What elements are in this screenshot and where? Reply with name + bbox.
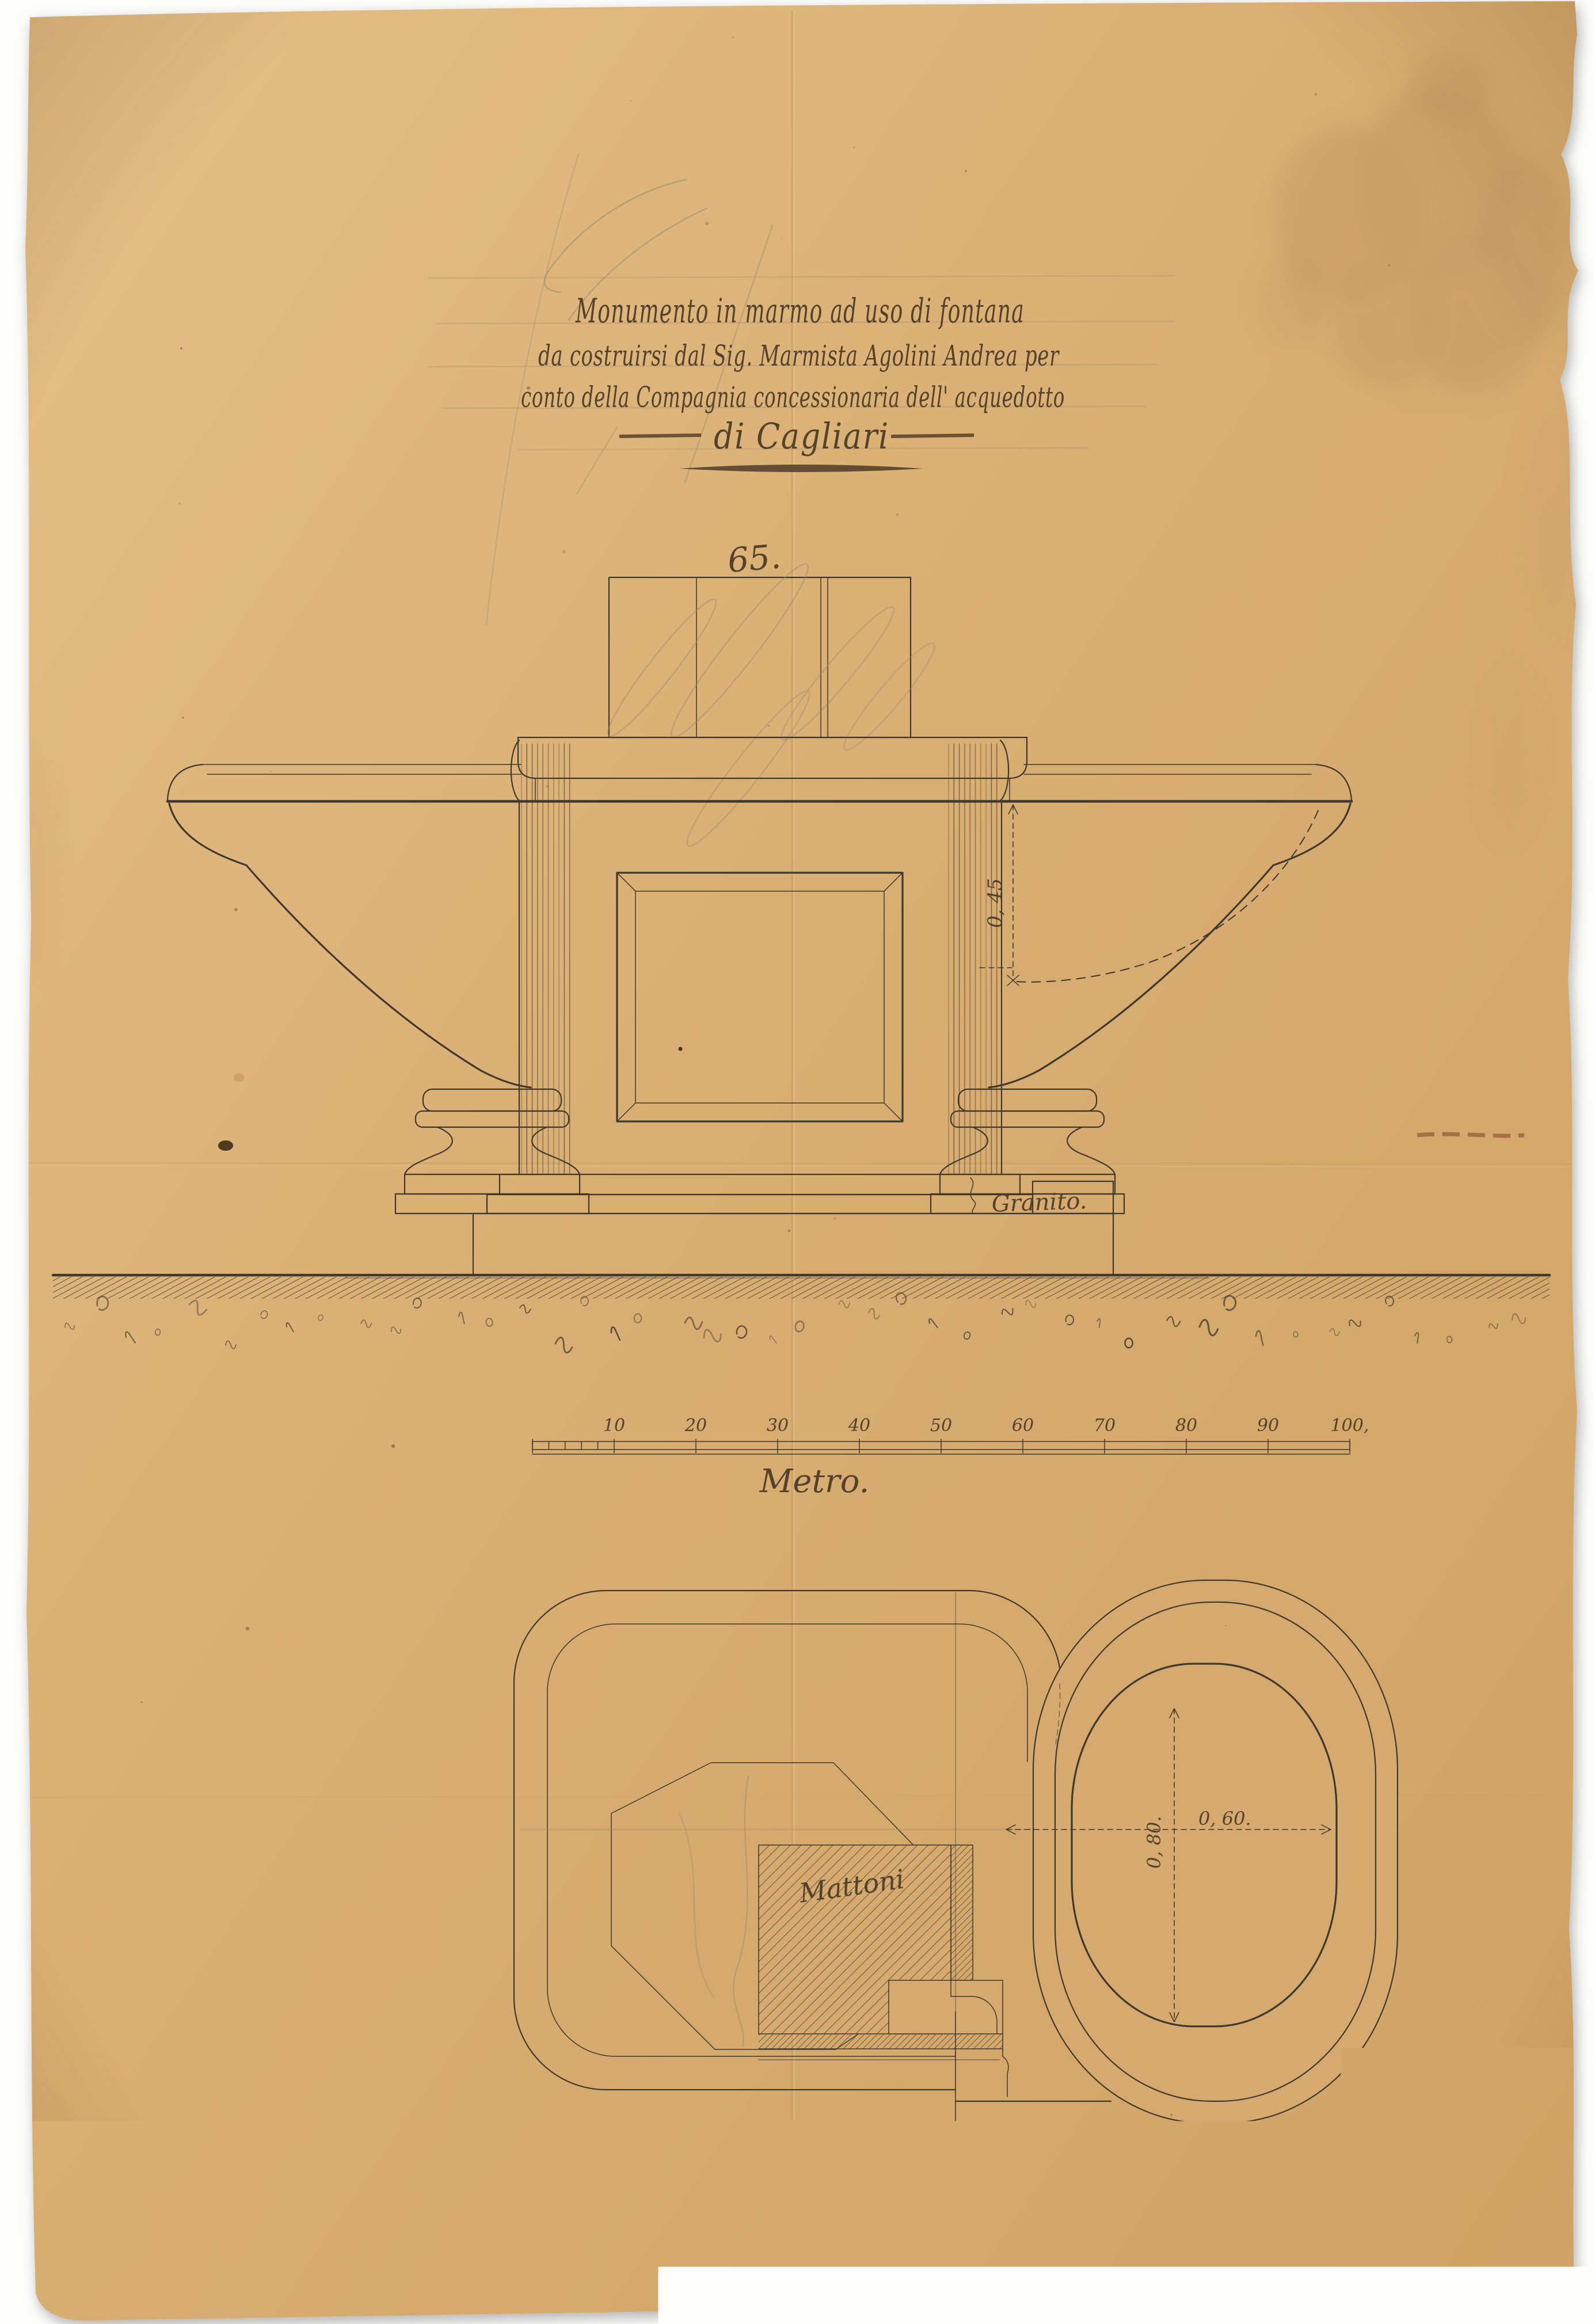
- paper-speckle: [618, 2162, 621, 2165]
- paper-speckle: [140, 1701, 143, 1703]
- scale-tick-label: 90: [1257, 1416, 1279, 1436]
- scale-tick-label: 80: [1175, 1416, 1197, 1436]
- paper-speckle: [182, 717, 184, 719]
- paper-speckle: [565, 2232, 569, 2236]
- basin-depth-label: 0, 45: [984, 878, 1007, 928]
- paper-speckle: [234, 908, 238, 911]
- paper-speckle: [1388, 264, 1390, 267]
- scale-tick-label: 20: [684, 1416, 707, 1436]
- paper-speckle: [246, 1627, 250, 1631]
- paper-speckle: [420, 578, 421, 579]
- scale-caption: Metro.: [759, 1463, 869, 1500]
- scanned-drawing-sheet: Monumento in marmo ad uso di fontana da …: [0, 0, 1595, 2324]
- granite-label: Granito.: [991, 1188, 1087, 1218]
- paper-speckle: [562, 550, 565, 553]
- paper-speckle: [546, 785, 549, 788]
- scale-tick-label: 30: [767, 1416, 789, 1436]
- title-line-2: da costruirsi dal Sig. Marmista Agolini …: [538, 339, 1060, 372]
- plan-width-label: 0, 60.: [1198, 1808, 1251, 1829]
- paper-speckle: [788, 1230, 790, 1232]
- scale-tick-label: 10: [603, 1416, 625, 1436]
- scan-page: { "document": { "kind": "Scanned hand-dr…: [0, 0, 1595, 2324]
- paper-speckle: [1064, 1624, 1065, 1625]
- paper-speckle: [233, 763, 234, 764]
- ground-hatch: [53, 1277, 1550, 1299]
- paper-speckle: [965, 170, 968, 173]
- paper-speckle: [853, 146, 855, 149]
- paper-speckle: [1225, 1625, 1227, 1627]
- paper-speckle: [630, 100, 631, 101]
- paper-speckle: [1170, 2114, 1173, 2116]
- paper-speckle: [179, 503, 180, 504]
- title-line-4: di Cagliari: [714, 415, 889, 457]
- paper-speckle: [494, 2169, 497, 2172]
- paper-speckle: [1478, 2001, 1479, 2002]
- scale-tick-label: 40: [848, 1416, 870, 1436]
- paper-speckle: [732, 36, 734, 39]
- scale-tick-label: 50: [930, 1416, 952, 1436]
- paper-speckle: [896, 514, 899, 516]
- paper-speckle: [270, 771, 271, 772]
- paper-speckle: [1315, 93, 1317, 96]
- paper-speckle: [833, 1218, 836, 1220]
- top-width-label: 65.: [726, 537, 782, 580]
- paper-speckle: [184, 824, 185, 825]
- paper-speckle: [768, 725, 770, 727]
- paper-speckle: [391, 1444, 395, 1448]
- paper-speckle: [527, 386, 530, 390]
- paper-speckle: [898, 2090, 899, 2091]
- title-line-1: Monumento in marmo ad uso di fontana: [575, 291, 1025, 330]
- scale-tick-label: 100,: [1331, 1416, 1369, 1436]
- plan-height-label: 0, 80.: [1143, 1816, 1165, 1869]
- paper-speckle: [781, 238, 782, 239]
- scale-tick-label: 60: [1012, 1416, 1034, 1436]
- paper-speckle: [925, 2205, 927, 2207]
- paper-speckle: [705, 222, 709, 225]
- paper-speckle: [180, 347, 182, 349]
- title-line-3: conto della Compagnia concessionaria del…: [521, 381, 1065, 414]
- scale-tick-label: 70: [1094, 1416, 1116, 1436]
- paper-speckle: [1300, 2272, 1303, 2276]
